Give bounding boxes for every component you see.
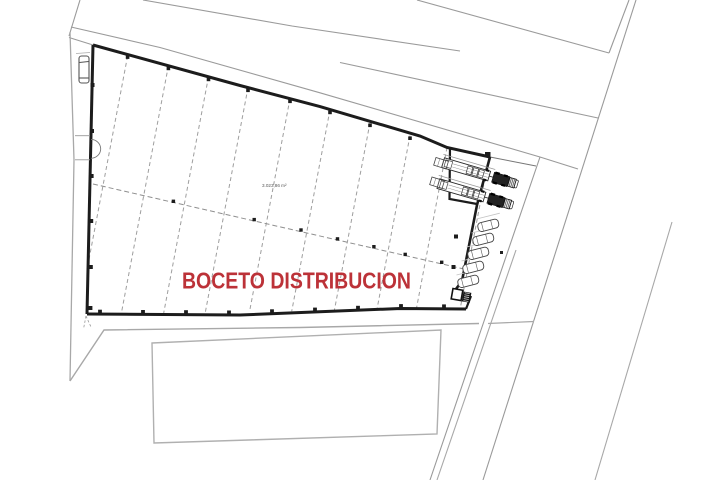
svg-text:BOCETO DISTRIBUCION: BOCETO DISTRIBUCION	[182, 268, 411, 294]
svg-text:3.023,86 m²: 3.023,86 m²	[262, 183, 287, 188]
